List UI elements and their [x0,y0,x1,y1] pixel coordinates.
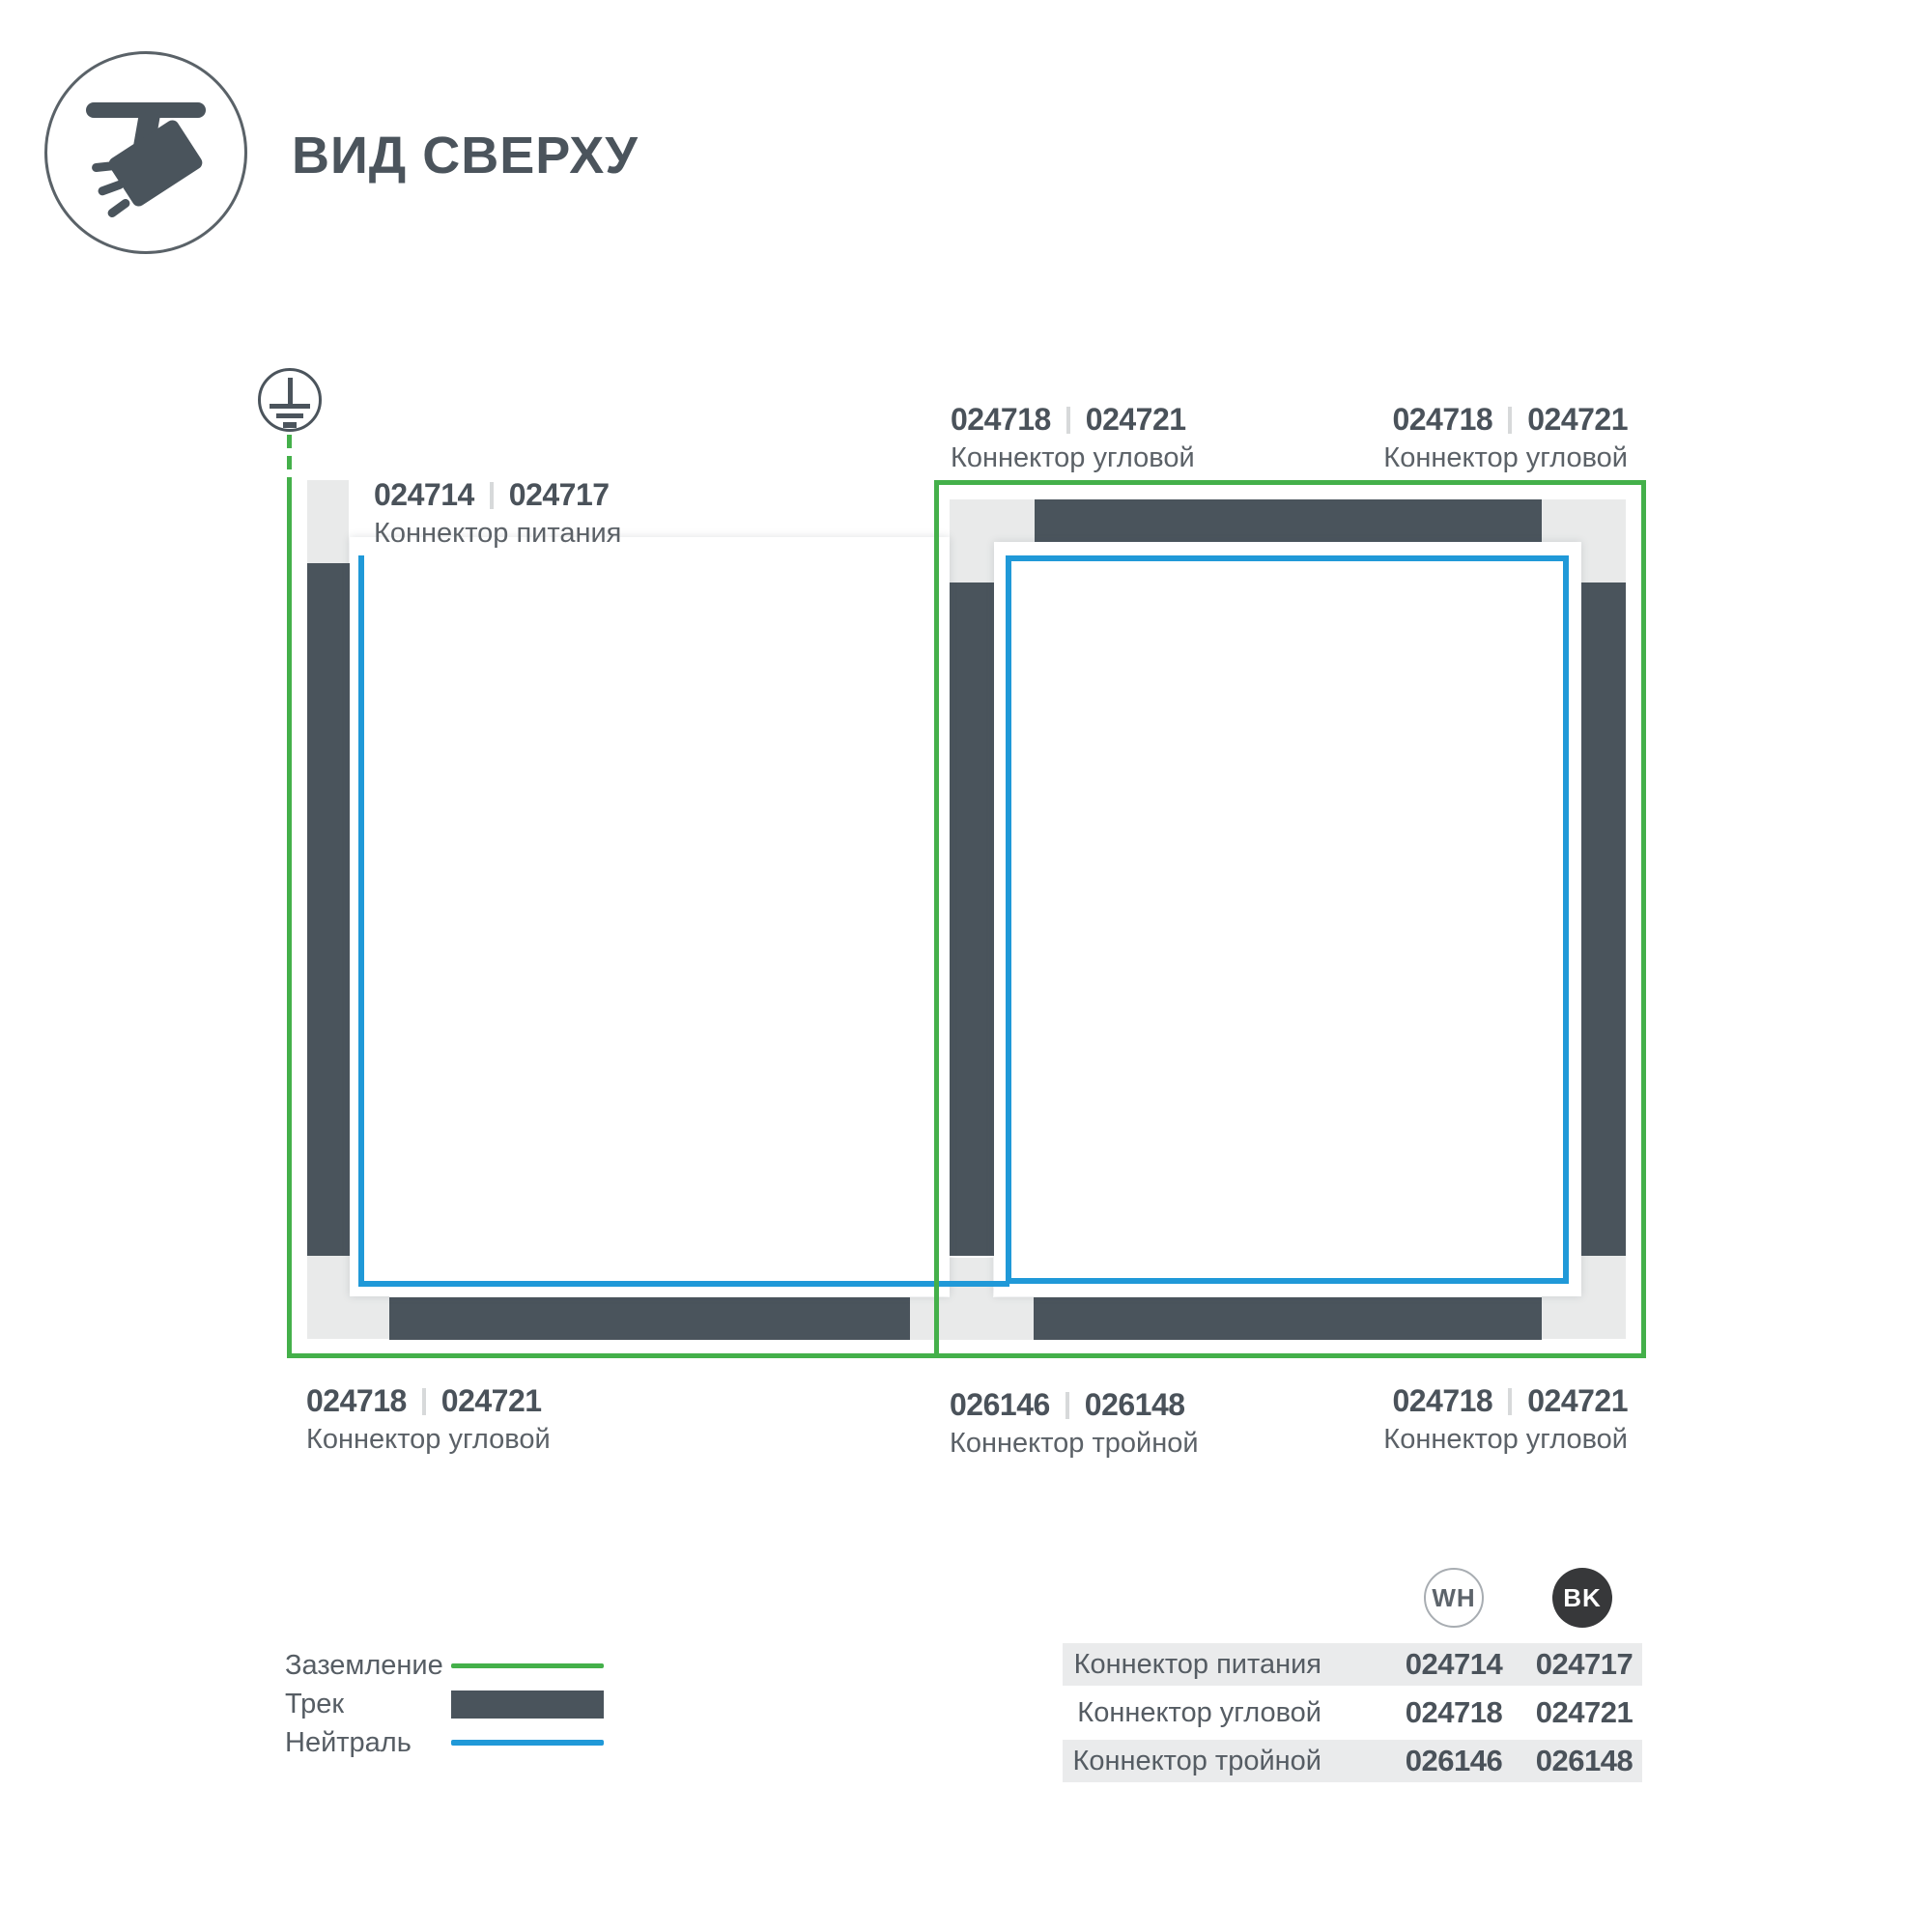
neutral-wire-left-vertical [358,555,364,1287]
label-name: Коннектор тройной [950,1428,1199,1460]
legend-label: Трек [285,1689,451,1720]
code-separator [422,1388,426,1415]
legend-item-track: Трек [285,1685,604,1723]
label-name: Коннектор угловой [1383,442,1628,474]
track-right-top [1035,499,1542,542]
table-row: Коннектор угловой 024718 024721 [1063,1691,1642,1734]
ground-wire-right [1641,480,1646,1358]
code-separator [490,482,494,509]
code-bk: 026148 [1085,1387,1185,1423]
row-name: Коннектор угловой [1063,1697,1381,1729]
code-bk: 024721 [1527,402,1628,438]
code-separator [1508,1388,1512,1415]
neutral-wire-left-horizontal [358,1281,1009,1287]
code-wh: 024718 [306,1383,407,1419]
track-left-vertical [307,563,352,1256]
label-name: Коннектор угловой [1383,1424,1628,1456]
page: ВИД СВЕРХУ 024714 024717 Коннектор пит [0,0,1932,1932]
label-codes: 024718 024721 [951,402,1195,438]
label-power-connector: 024714 024717 Коннектор питания [374,477,621,550]
track-bar-swatch [451,1690,604,1719]
color-badge-bk: BK [1552,1568,1612,1628]
label-triple-connector: 026146 026148 Коннектор тройной [950,1387,1199,1460]
ground-wire-top-right [934,480,1646,485]
track-right-bottom [1034,1297,1542,1340]
label-codes: 024718 024721 [306,1383,551,1419]
ground-line-mid [276,413,303,418]
ground-wire-left [287,481,292,1358]
label-corner-connector-bottom-right: 024718 024721 Коннектор угловой [1383,1383,1628,1456]
label-name: Коннектор питания [374,518,621,550]
label-corner-connector-top-right: 024718 024721 Коннектор угловой [1383,402,1628,474]
ground-line-swatch [451,1663,604,1668]
row-code-bk: 024717 [1526,1647,1642,1682]
neutral-line-swatch [451,1740,604,1746]
code-bk: 024721 [1527,1383,1628,1419]
track-spotlight-icon [44,51,247,254]
color-badge-wh: WH [1424,1568,1484,1628]
label-name: Коннектор угловой [306,1424,551,1456]
row-code-wh: 024714 [1381,1647,1526,1682]
label-name: Коннектор угловой [951,442,1195,474]
code-bk: 024721 [441,1383,542,1419]
label-corner-connector-top-mid: 024718 024721 Коннектор угловой [951,402,1195,474]
track-right-left-vertical [950,582,994,1256]
triple-connector-block [910,1297,1034,1340]
code-wh: 024718 [951,402,1051,438]
code-wh: 024714 [374,477,474,513]
row-code-bk: 026148 [1526,1744,1642,1778]
legend: Заземление Трек Нейтраль [285,1646,604,1762]
legend-item-ground: Заземление [285,1646,604,1685]
label-codes: 026146 026148 [950,1387,1199,1423]
ground-wire-dashed [287,435,292,481]
table-row: Коннектор питания 024714 024717 [1063,1643,1642,1686]
label-codes: 024718 024721 [1383,1383,1628,1419]
row-code-wh: 026146 [1381,1744,1526,1778]
label-corner-connector-bottom-left: 024718 024721 Коннектор угловой [306,1383,551,1456]
ground-wire-bottom [287,1353,1646,1358]
power-connector-block [307,480,349,563]
legend-item-neutral: Нейтраль [285,1723,604,1762]
icon-light-ray [97,179,125,196]
ground-wire-middle [934,483,939,1353]
row-name: Коннектор тройной [1063,1746,1381,1777]
code-bk: 024717 [509,477,610,513]
table-row: Коннектор тройной 026146 026148 [1063,1740,1642,1782]
code-wh: 024718 [1392,1383,1492,1419]
track-right-right-vertical [1581,582,1626,1256]
code-wh: 024718 [1392,402,1492,438]
ground-line-short [283,422,297,428]
row-code-bk: 024721 [1526,1695,1642,1730]
ground-stem [288,378,293,406]
legend-label: Заземление [285,1650,451,1682]
triple-connector-stub [950,1258,993,1298]
row-code-wh: 024718 [1381,1695,1526,1730]
code-separator [1508,407,1512,434]
ground-line-long [270,404,310,409]
icon-spot-head [106,118,205,209]
label-codes: 024714 024717 [374,477,621,513]
earth-ground-icon [258,368,322,432]
code-bk: 024721 [1086,402,1186,438]
code-separator [1065,1392,1069,1419]
legend-label: Нейтраль [285,1727,451,1759]
label-codes: 024718 024721 [1383,402,1628,438]
row-name: Коннектор питания [1063,1649,1381,1681]
neutral-wire-right-loop [1006,555,1569,1284]
page-title: ВИД СВЕРХУ [292,126,639,185]
icon-light-ray [106,197,131,219]
code-separator [1066,407,1070,434]
code-wh: 026146 [950,1387,1050,1423]
track-bottom-left [389,1297,910,1340]
inner-panel-left [350,537,950,1296]
